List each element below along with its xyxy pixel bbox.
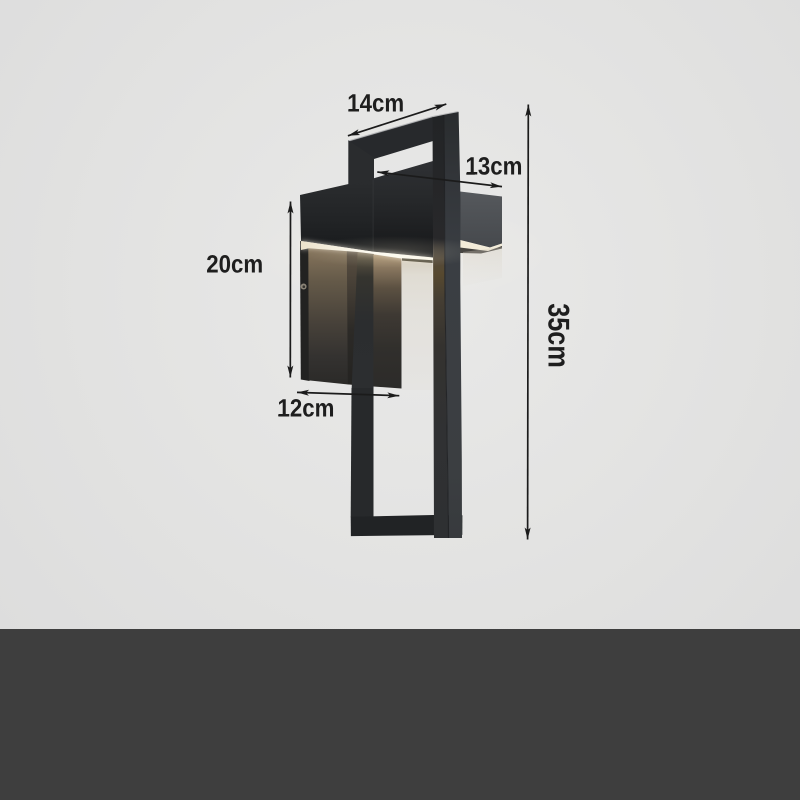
svg-text:14cm: 14cm — [347, 89, 404, 117]
svg-text:12cm: 12cm — [278, 394, 335, 422]
svg-text:35cm: 35cm — [542, 303, 575, 367]
svg-text:20cm: 20cm — [206, 251, 263, 279]
svg-text:13cm: 13cm — [466, 153, 523, 181]
